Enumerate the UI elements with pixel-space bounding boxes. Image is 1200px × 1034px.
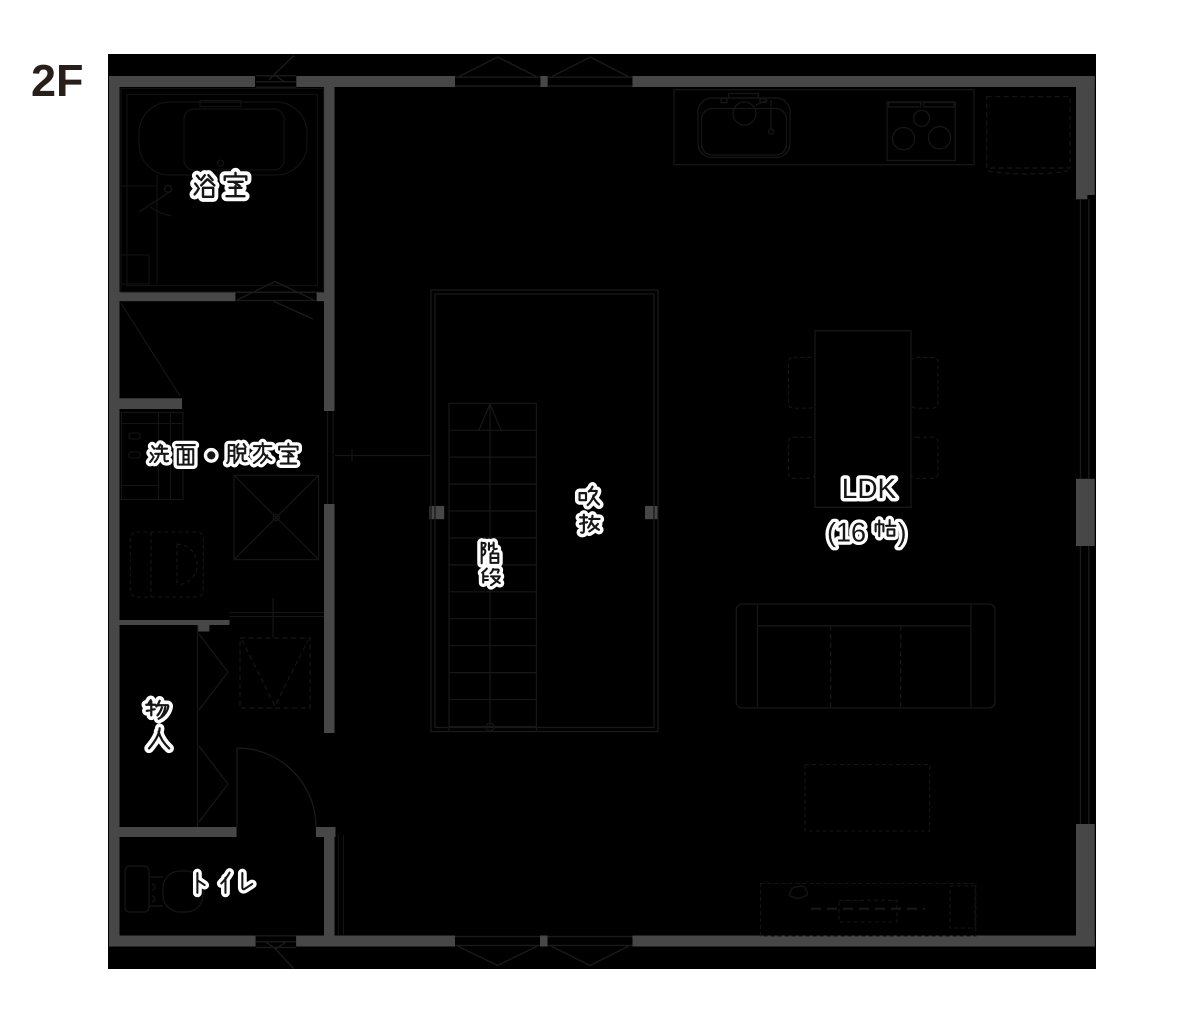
svg-text:(16: (16 — [827, 518, 866, 548]
svg-text:): ) — [898, 518, 907, 548]
svg-text:2F: 2F — [31, 55, 84, 106]
svg-text:LDK: LDK — [842, 473, 897, 504]
